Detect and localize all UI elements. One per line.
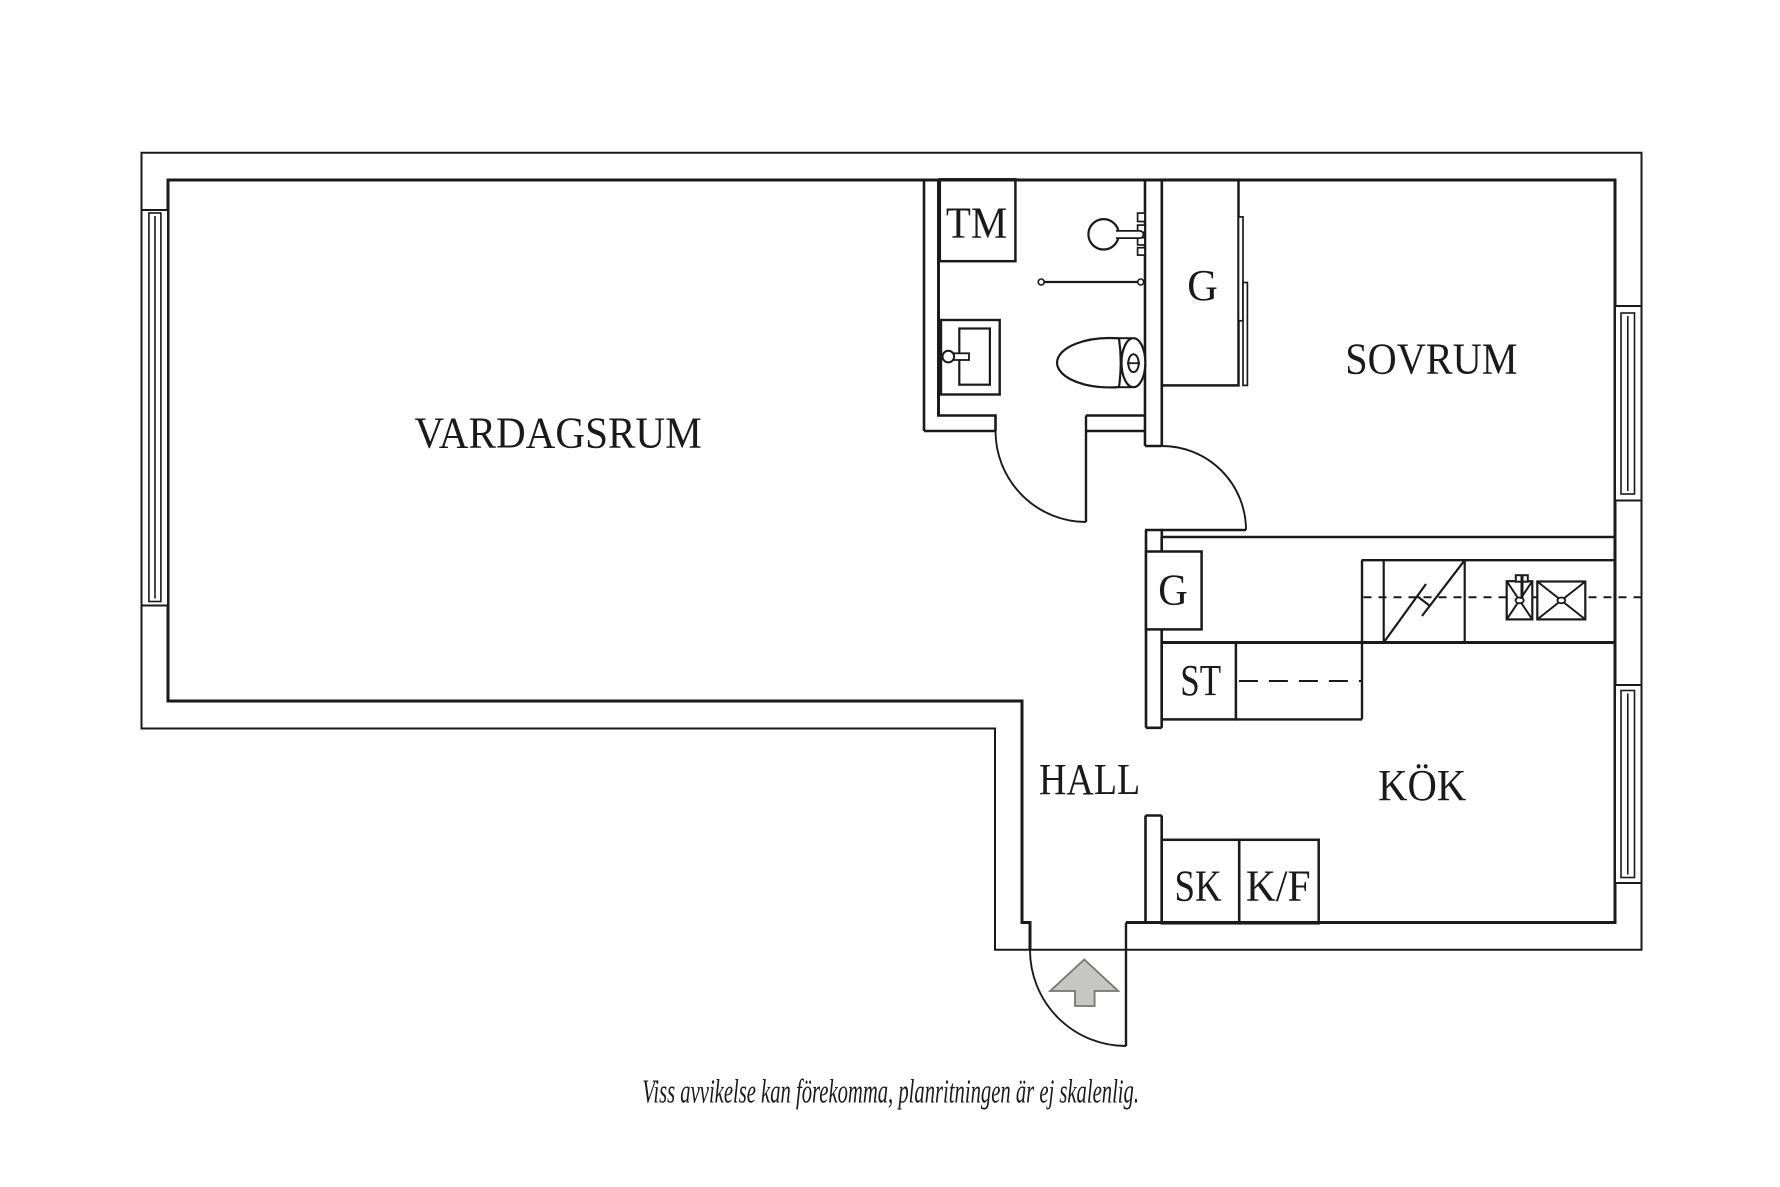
svg-text:SK: SK: [1175, 861, 1222, 910]
svg-text:G: G: [1187, 261, 1218, 310]
svg-text:G: G: [1158, 566, 1188, 615]
svg-text:KÖK: KÖK: [1378, 761, 1466, 810]
svg-text:TM: TM: [946, 199, 1007, 248]
svg-text:K/F: K/F: [1246, 861, 1311, 910]
svg-text:Viss avvikelse kan förekomma,: Viss avvikelse kan förekomma, planritnin…: [642, 1073, 1139, 1110]
svg-text:ST: ST: [1180, 656, 1221, 705]
svg-text:HALL: HALL: [1039, 755, 1140, 804]
svg-text:VARDAGSRUM: VARDAGSRUM: [414, 409, 701, 458]
svg-text:SOVRUM: SOVRUM: [1345, 335, 1517, 384]
